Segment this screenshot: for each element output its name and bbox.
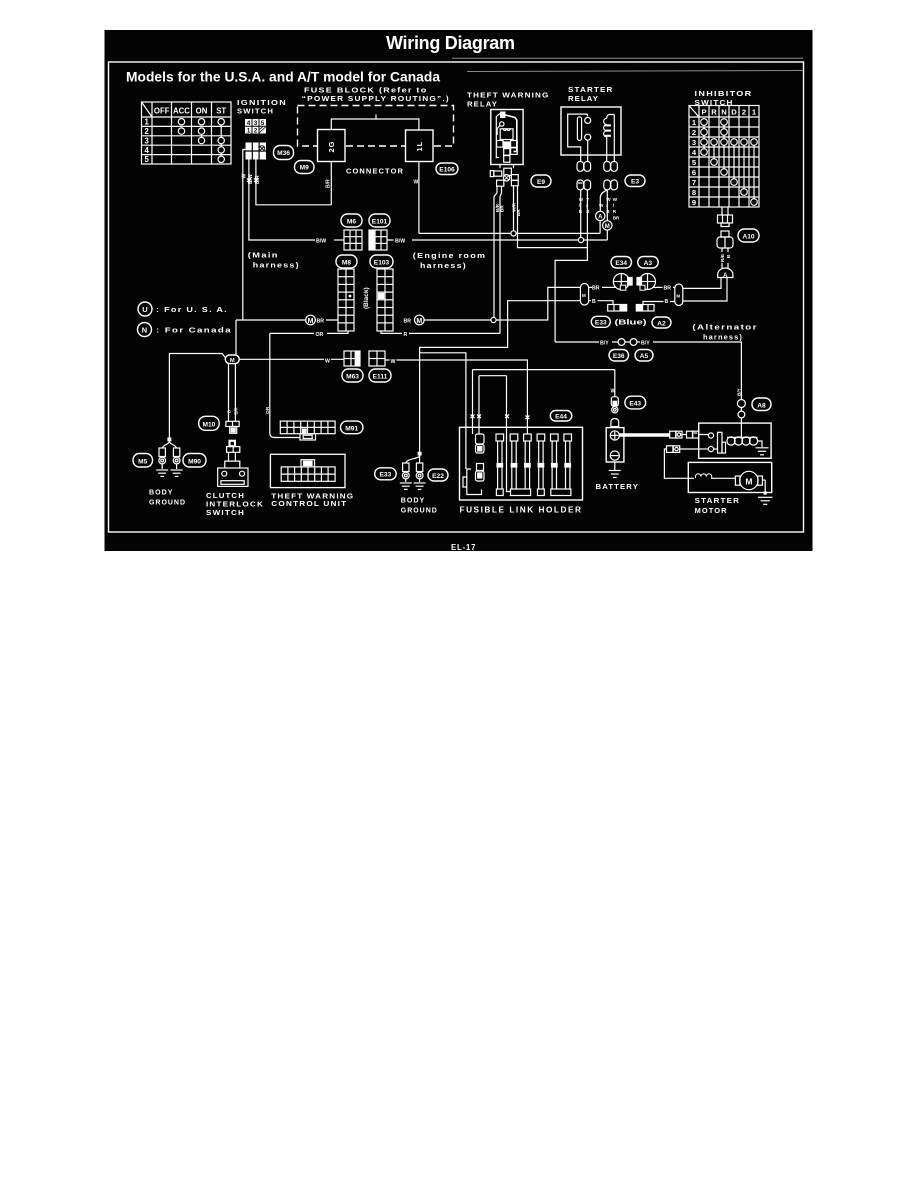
svg-text:R: R [404, 332, 408, 338]
svg-text:BODY: BODY [401, 496, 426, 505]
svg-text:M: M [582, 293, 586, 298]
svg-text:RELAY: RELAY [568, 94, 599, 103]
svg-text:1: 1 [145, 118, 150, 127]
svg-text:GROUND: GROUND [149, 498, 186, 507]
svg-text:M: M [416, 318, 422, 325]
svg-text:M5: M5 [138, 458, 147, 465]
svg-text:MOTOR: MOTOR [695, 506, 728, 515]
svg-text:harness): harness) [420, 261, 467, 270]
svg-text:E3: E3 [631, 179, 639, 186]
svg-text:B/R: B/R [234, 407, 239, 414]
svg-text:E106: E106 [439, 167, 455, 174]
svg-text:M91: M91 [345, 425, 358, 432]
svg-text:E43: E43 [629, 401, 641, 408]
svg-text:A5: A5 [640, 353, 649, 360]
svg-text:SWITCH: SWITCH [237, 107, 274, 116]
svg-text:ST: ST [216, 107, 226, 116]
svg-text:E44: E44 [555, 414, 567, 421]
svg-text:BR: BR [613, 216, 620, 221]
svg-text:E111: E111 [373, 374, 388, 381]
svg-text:A2: A2 [657, 320, 666, 327]
svg-text:CONTROL UNIT: CONTROL UNIT [271, 499, 347, 508]
svg-text:ACC: ACC [173, 107, 190, 116]
svg-text:: For U. S. A.: : For U. S. A. [156, 305, 228, 314]
svg-text:6: 6 [692, 168, 696, 177]
svg-text:N: N [721, 108, 726, 117]
svg-text:R: R [711, 108, 717, 117]
svg-text:CONNECTOR: CONNECTOR [346, 167, 404, 176]
svg-text:M8: M8 [342, 260, 351, 267]
svg-text:A3: A3 [644, 260, 653, 267]
svg-text:EL-17: EL-17 [451, 543, 476, 552]
svg-text:BR: BR [404, 319, 412, 325]
svg-text:D: D [731, 108, 737, 117]
svg-text:(Black): (Black) [363, 287, 370, 309]
svg-text:B/W: B/W [395, 238, 405, 244]
svg-text:BR: BR [516, 209, 521, 216]
svg-text:(Blue): (Blue) [615, 318, 648, 327]
svg-text:W: W [613, 197, 618, 202]
svg-text:4: 4 [145, 146, 150, 155]
svg-text:STARTER: STARTER [568, 85, 614, 94]
svg-text:E36: E36 [613, 353, 625, 360]
svg-text:2: 2 [692, 128, 696, 137]
svg-text:M9: M9 [300, 165, 309, 172]
svg-text:M63: M63 [346, 374, 359, 381]
svg-text:3: 3 [145, 136, 150, 145]
svg-text:B/W: B/W [316, 238, 326, 244]
svg-text:P: P [701, 108, 706, 117]
svg-text:(Alternator: (Alternator [692, 323, 758, 332]
svg-text:M10: M10 [202, 421, 215, 428]
svg-text:harness): harness) [703, 333, 743, 342]
svg-text:3: 3 [692, 138, 696, 147]
svg-text:M36: M36 [277, 150, 290, 157]
svg-text:A10: A10 [742, 234, 754, 241]
svg-text:A: A [598, 215, 603, 221]
svg-text:B/R: B/R [326, 179, 332, 188]
svg-text:7: 7 [692, 178, 696, 187]
svg-text:OR: OR [316, 332, 324, 338]
svg-text:(Main: (Main [248, 251, 279, 260]
svg-text:U: U [142, 305, 147, 314]
svg-text:OFF: OFF [154, 107, 170, 116]
svg-text:STARTER: STARTER [695, 496, 741, 505]
svg-text:A8: A8 [757, 402, 766, 409]
svg-text:2G: 2G [327, 140, 336, 152]
svg-text:BR: BR [664, 286, 672, 292]
svg-text:: For Canada: : For Canada [156, 326, 232, 335]
svg-text:R/B: R/B [720, 253, 725, 262]
svg-text:“POWER SUPPLY ROUTING”.): “POWER SUPPLY ROUTING”.) [302, 94, 450, 103]
svg-text:5: 5 [145, 155, 150, 164]
svg-text:SWITCH: SWITCH [206, 508, 245, 517]
svg-text:BODY: BODY [149, 488, 174, 497]
svg-text:B: B [665, 299, 669, 305]
svg-text:harness): harness) [253, 261, 300, 270]
svg-text:9: 9 [692, 198, 696, 207]
svg-text:ON: ON [196, 107, 208, 116]
svg-text:E9: E9 [537, 179, 545, 186]
svg-text:E101: E101 [372, 219, 388, 226]
svg-text:RELAY: RELAY [467, 100, 498, 109]
svg-text:BR: BR [317, 319, 325, 325]
svg-text:2: 2 [145, 127, 150, 136]
svg-text:N: N [142, 326, 147, 335]
svg-text:M90: M90 [188, 458, 201, 465]
svg-text:M: M [230, 358, 235, 364]
svg-text:E33: E33 [595, 320, 607, 327]
svg-text:B/Y: B/Y [736, 388, 741, 396]
svg-text:E34: E34 [615, 260, 627, 267]
svg-text:B/Y: B/Y [600, 341, 609, 347]
svg-text:2: 2 [742, 108, 746, 117]
svg-text:BR: BR [592, 286, 600, 292]
svg-text:W: W [325, 359, 330, 365]
svg-text:(Engine room: (Engine room [413, 251, 487, 260]
svg-text:M: M [308, 318, 314, 325]
svg-text:B/Y: B/Y [641, 341, 650, 347]
svg-text:Models for the U.S.A. and A/T: Models for the U.S.A. and A/T model for … [126, 70, 440, 85]
svg-text:B: B [592, 299, 596, 305]
svg-text:E22: E22 [432, 473, 444, 480]
svg-text:M6: M6 [347, 219, 356, 226]
svg-text:E103: E103 [374, 260, 390, 267]
svg-text:E33: E33 [380, 472, 392, 479]
svg-text:8: 8 [692, 188, 696, 197]
svg-text:BATTERY: BATTERY [596, 482, 640, 491]
svg-text:THEFT WARNING: THEFT WARNING [467, 91, 550, 100]
svg-text:W: W [391, 359, 396, 365]
svg-text:W: W [414, 180, 419, 186]
svg-text:GROUND: GROUND [401, 506, 438, 515]
svg-text:INHIBITOR: INHIBITOR [695, 89, 753, 98]
svg-text:1L: 1L [415, 141, 424, 152]
svg-text:FUSIBLE LINK HOLDER: FUSIBLE LINK HOLDER [460, 506, 583, 515]
svg-text:Wiring Diagram: Wiring Diagram [386, 33, 515, 53]
svg-text:M: M [605, 224, 610, 230]
svg-text:M: M [745, 476, 752, 486]
svg-text:M: M [676, 294, 680, 299]
